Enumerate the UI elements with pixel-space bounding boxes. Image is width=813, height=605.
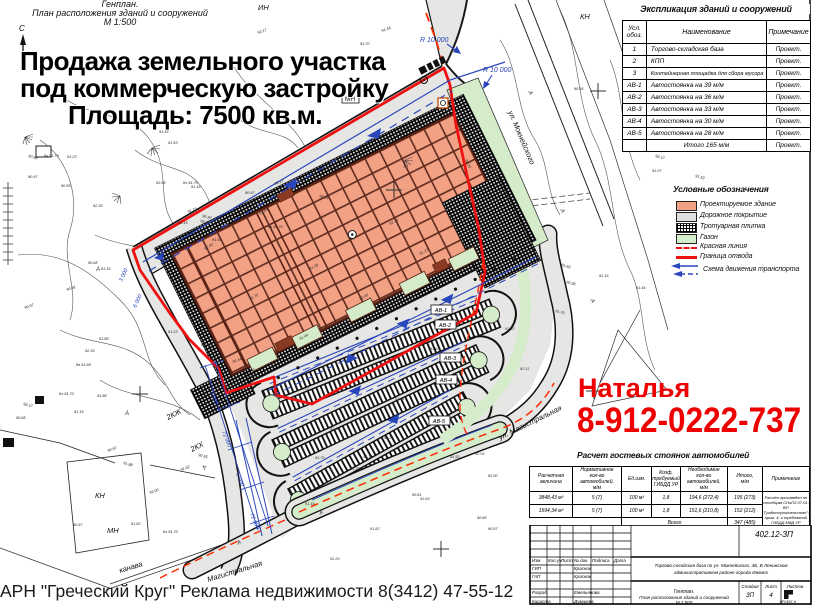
svg-text:92.35: 92.35 (85, 349, 95, 353)
svg-text:90.55: 90.55 (61, 184, 71, 188)
svg-text:92.11: 92.11 (520, 367, 529, 371)
svg-text:ИН: ИН (258, 3, 269, 12)
svg-text:АВ-2: АВ-2 (438, 323, 451, 329)
svg-text:91.70: 91.70 (315, 456, 325, 460)
svg-text:91.51: 91.51 (395, 397, 405, 401)
svg-text:Кч 91.70: Кч 91.70 (268, 225, 284, 229)
svg-text:АВ-4: АВ-4 (439, 378, 452, 384)
svg-text:Листов: Листов (786, 584, 804, 589)
svg-text:91.15: 91.15 (101, 267, 111, 271)
svg-text:91.53: 91.53 (450, 455, 460, 459)
svg-text:Кч 91.70: Кч 91.70 (163, 530, 179, 534)
svg-text:Краснов: Краснов (574, 566, 592, 571)
svg-text:R 10 000: R 10 000 (420, 37, 449, 44)
svg-text:90.97: 90.97 (488, 527, 498, 531)
svg-text:91.82: 91.82 (370, 527, 380, 531)
svg-text:КН: КН (95, 491, 105, 500)
svg-text:Разраб.: Разраб. (532, 590, 548, 595)
svg-text:Торгово-складская база по ул.: Торгово-складская база по ул. Мокнейског… (655, 562, 789, 568)
svg-text:90.68: 90.68 (88, 261, 98, 265)
svg-text:91.15: 91.15 (159, 130, 169, 134)
svg-text:А: А (124, 411, 129, 417)
svg-text:АВ-5: АВ-5 (432, 419, 446, 425)
svg-text:ГИП: ГИП (532, 566, 542, 571)
svg-text:92.08: 92.08 (156, 181, 166, 185)
svg-text:Лист: Лист (560, 558, 573, 563)
svg-text:Кч 91.70: Кч 91.70 (44, 154, 60, 158)
svg-text:АВ-1: АВ-1 (434, 308, 447, 314)
svg-text:92.29: 92.29 (330, 557, 340, 561)
svg-text:91.62: 91.62 (131, 522, 141, 526)
svg-text:АВ-3: АВ-3 (443, 356, 457, 362)
svg-text:КН: КН (580, 12, 590, 21)
svg-text:А: А (95, 267, 100, 273)
svg-text:91.69: 91.69 (420, 497, 430, 501)
svg-text:91.53: 91.53 (505, 327, 515, 331)
svg-text:402.12-ЗП: 402.12-ЗП (755, 530, 793, 539)
svg-text:92.26: 92.26 (384, 436, 394, 440)
svg-text:92.04: 92.04 (475, 452, 485, 456)
svg-text:Кч 91.70: Кч 91.70 (59, 392, 75, 396)
svg-text:90.97: 90.97 (28, 175, 38, 179)
svg-text:91.23: 91.23 (67, 155, 77, 159)
svg-text:Краснов: Краснов (574, 574, 592, 579)
svg-text:90.97: 90.97 (73, 523, 83, 527)
svg-text:№ док.: № док. (574, 558, 589, 563)
svg-text:90.68: 90.68 (477, 516, 487, 520)
svg-text:91.88: 91.88 (97, 394, 107, 398)
svg-text:Кириста: Кириста (532, 599, 551, 604)
svg-text:МН: МН (107, 526, 119, 535)
svg-text:91.15: 91.15 (74, 410, 84, 414)
svg-text:М 1:500: М 1:500 (676, 600, 693, 605)
svg-text:ЗП: ЗП (746, 593, 755, 599)
svg-text:91.63: 91.63 (430, 347, 440, 351)
svg-text:91.70: 91.70 (363, 455, 373, 459)
svg-text:ГАП: ГАП (532, 574, 541, 579)
svg-text:ПРОЕКТ-Н: ПРОЕКТ-Н (780, 600, 797, 604)
svg-text:92.35: 92.35 (93, 204, 103, 208)
svg-text:Стадия: Стадия (741, 584, 759, 589)
svg-text:91.53: 91.53 (212, 238, 222, 242)
svg-text:91.15: 91.15 (599, 274, 609, 278)
svg-text:91.15: 91.15 (191, 185, 201, 189)
svg-text:Дата: Дата (613, 558, 626, 563)
svg-text:Кол.уч: Кол.уч (548, 558, 562, 563)
svg-text:90.68: 90.68 (16, 416, 26, 420)
svg-text:90.55: 90.55 (574, 87, 584, 91)
svg-text:92.22: 92.22 (300, 387, 310, 391)
svg-text:91.44: 91.44 (636, 286, 646, 290)
svg-text:8в 91.68: 8в 91.68 (76, 363, 92, 367)
svg-text:90.97: 90.97 (245, 191, 255, 195)
svg-text:91.53: 91.53 (168, 141, 178, 145)
svg-text:административном районе города: административном районе города Ижевск (674, 569, 769, 575)
svg-text:Лист: Лист (764, 584, 777, 589)
svg-text:91.88: 91.88 (99, 337, 109, 341)
svg-text:91.15: 91.15 (305, 502, 315, 506)
svg-text:91.15: 91.15 (178, 221, 188, 225)
svg-text:92.00: 92.00 (488, 474, 498, 478)
svg-text:Подпись: Подпись (592, 558, 610, 563)
svg-text:91.78: 91.78 (350, 467, 360, 471)
svg-text:Емельянова: Емельянова (574, 590, 600, 595)
svg-text:90.68: 90.68 (201, 343, 211, 347)
svg-text:91.23: 91.23 (168, 330, 178, 334)
svg-text:Думшева: Думшева (573, 599, 594, 604)
svg-text:91.07: 91.07 (652, 169, 662, 173)
svg-text:R 10 000: R 10 000 (483, 67, 512, 74)
svg-text:Изм.: Изм. (532, 558, 542, 563)
svg-text:92.08: 92.08 (330, 427, 340, 431)
